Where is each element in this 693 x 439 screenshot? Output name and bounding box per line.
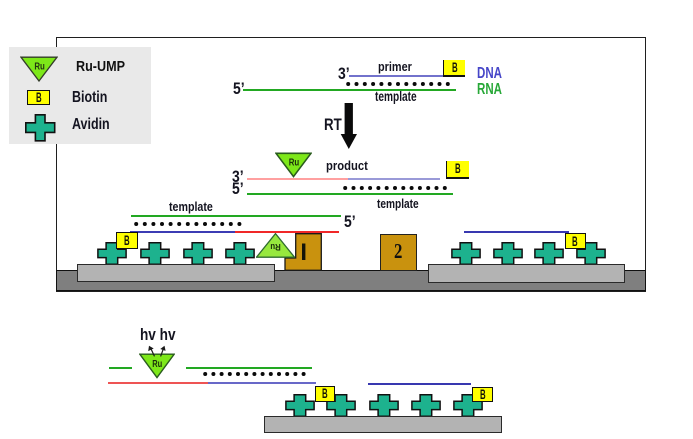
svg-text:Ru: Ru xyxy=(270,241,281,252)
svg-text:Ru: Ru xyxy=(288,157,299,168)
svg-text:Ru: Ru xyxy=(152,359,162,370)
svg-text:Ru: Ru xyxy=(34,61,45,73)
